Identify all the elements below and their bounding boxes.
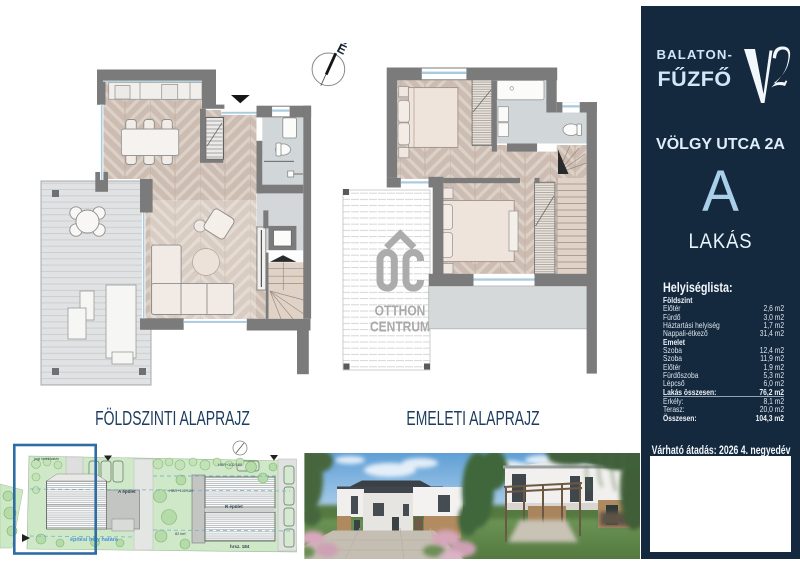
- svg-text:HBR+102/180: HBR+102/180: [218, 463, 242, 467]
- svg-text:CENTRUM: CENTRUM: [370, 318, 430, 335]
- svg-text:A épület: A épület: [118, 489, 136, 494]
- svg-text:82 bef: 82 bef: [175, 532, 187, 536]
- svg-text:+HBR+102/180: +HBR+102/180: [167, 489, 193, 493]
- svg-text:EMELETI ALAPRAJZ: EMELETI ALAPRAJZ: [406, 406, 539, 429]
- svg-text:B épület: B épület: [225, 504, 243, 509]
- svg-text:hrsz. 184: hrsz. 184: [230, 544, 250, 549]
- svg-text:jogi telekhatár: jogi telekhatár: [33, 456, 60, 461]
- svg-text:OTTHON: OTTHON: [375, 302, 426, 319]
- svg-text:FÖLDSZINTI ALAPRAJZ: FÖLDSZINTI ALAPRAJZ: [95, 406, 250, 429]
